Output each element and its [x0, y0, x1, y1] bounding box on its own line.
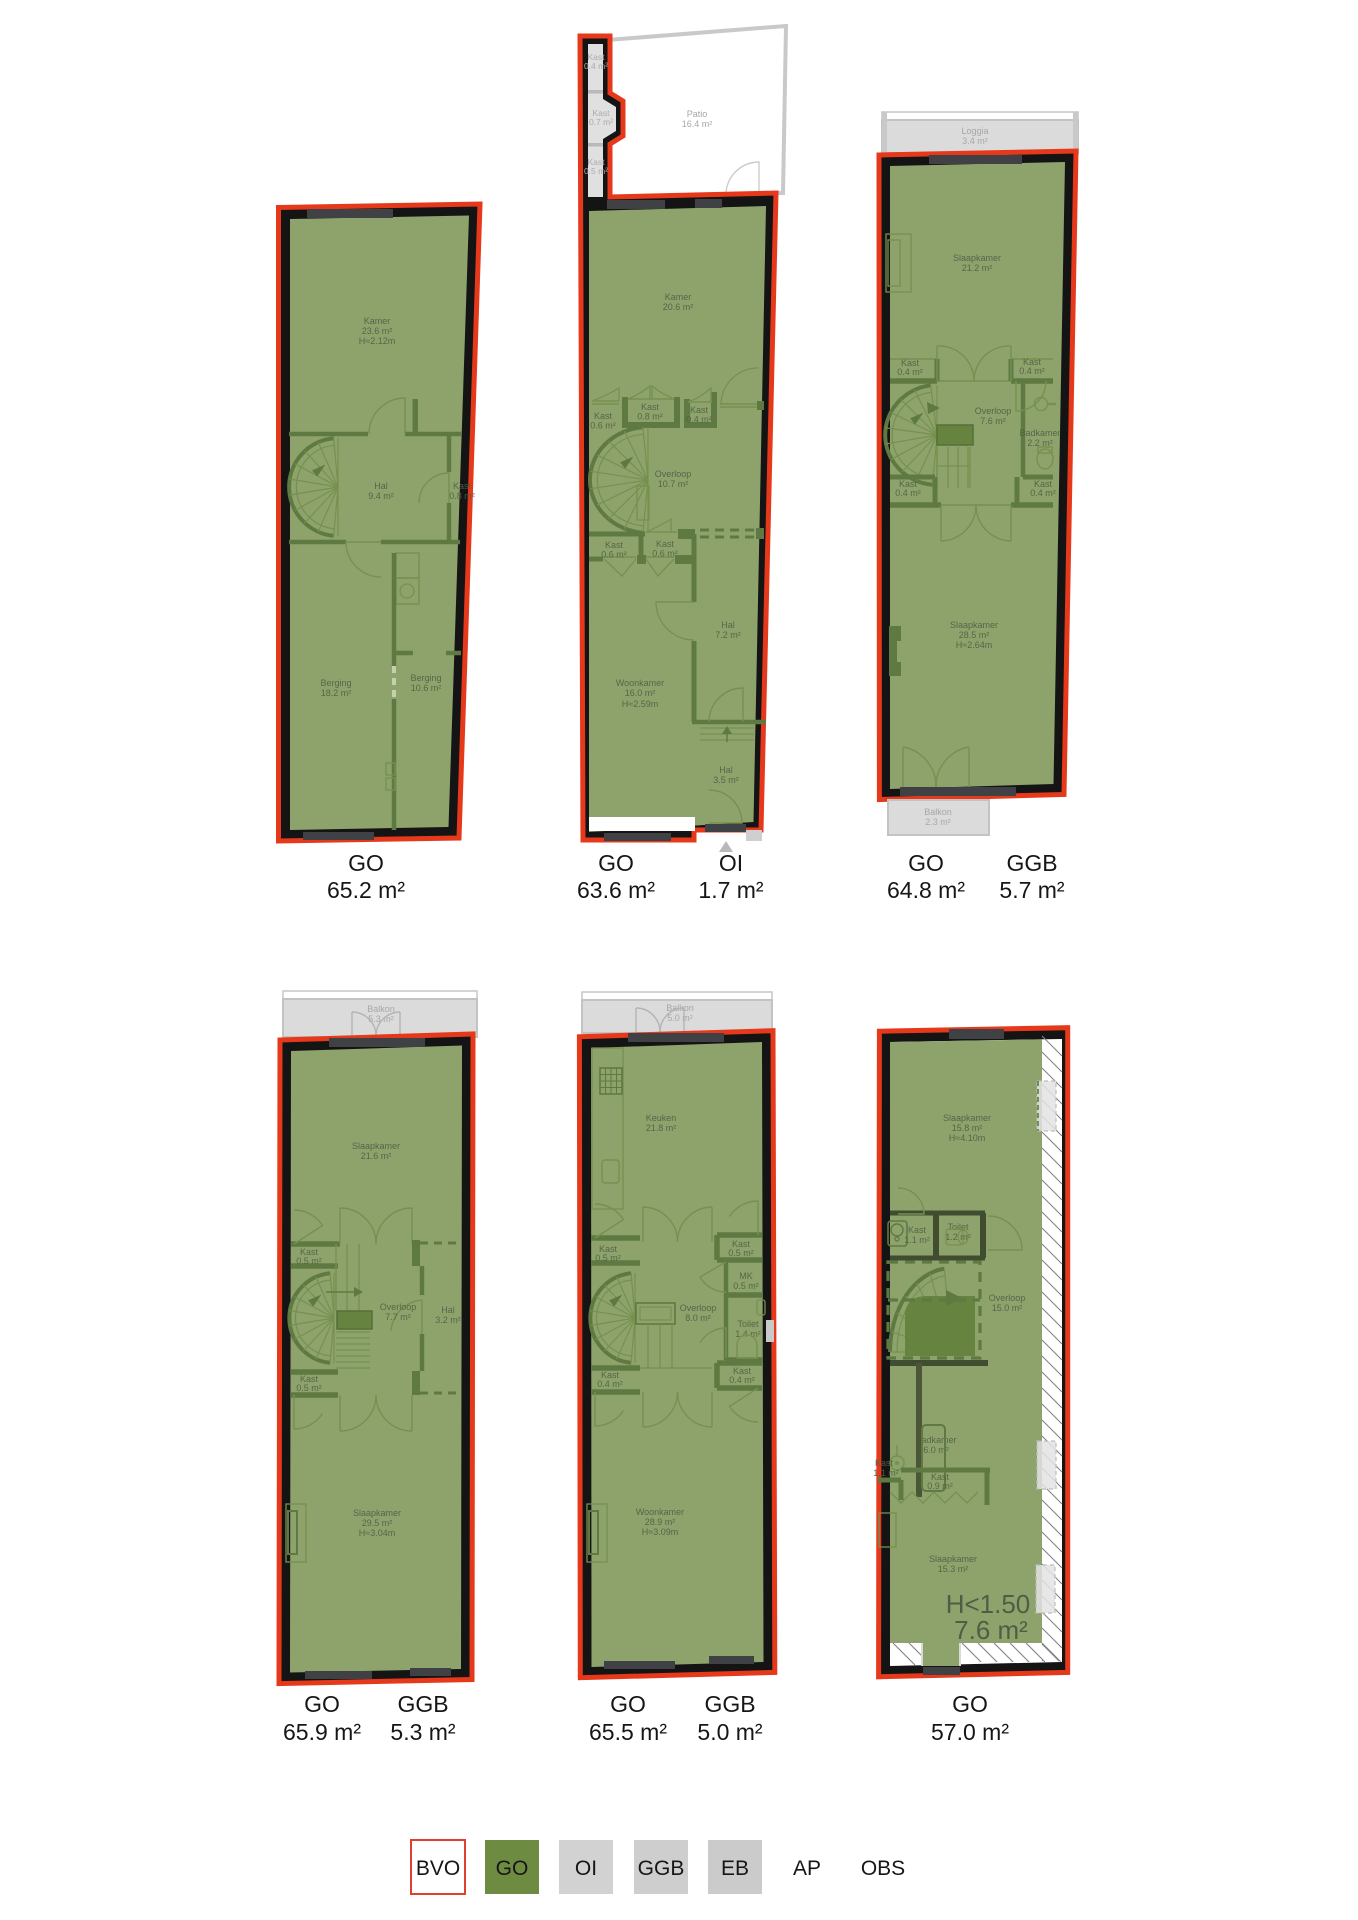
svg-text:0.4 m²: 0.4 m²: [1019, 366, 1045, 376]
svg-text:OBS: OBS: [861, 1857, 905, 1880]
svg-text:Kast: Kast: [641, 402, 660, 412]
svg-text:7.6 m²: 7.6 m²: [980, 416, 1006, 426]
svg-text:65.5 m²: 65.5 m²: [589, 1719, 667, 1745]
svg-text:21.6 m²: 21.6 m²: [361, 1151, 392, 1161]
svg-text:Berging: Berging: [320, 678, 351, 688]
svg-text:28.9 m²: 28.9 m²: [645, 1517, 676, 1527]
svg-text:H≈3.04m: H≈3.04m: [359, 1528, 395, 1538]
svg-text:1.1 m²: 1.1 m²: [873, 1468, 899, 1478]
svg-text:Badkamer: Badkamer: [1019, 428, 1060, 438]
svg-text:H≈3.09m: H≈3.09m: [642, 1527, 678, 1537]
svg-text:MK: MK: [739, 1271, 753, 1281]
svg-text:Kast: Kast: [605, 540, 624, 550]
svg-text:5.0 m²: 5.0 m²: [667, 1013, 693, 1023]
svg-text:3.5 m²: 3.5 m²: [713, 775, 739, 785]
svg-text:0.4 m²: 0.4 m²: [1030, 488, 1056, 498]
svg-text:Kast: Kast: [453, 481, 472, 491]
svg-text:16.0 m²: 16.0 m²: [625, 688, 656, 698]
svg-text:65.9 m²: 65.9 m²: [283, 1719, 361, 1745]
svg-text:8.0 m²: 8.0 m²: [685, 1313, 711, 1323]
svg-text:Slaapkamer: Slaapkamer: [953, 253, 1001, 263]
svg-text:Kast: Kast: [875, 1458, 894, 1468]
svg-text:0.5 m²: 0.5 m²: [733, 1281, 759, 1291]
svg-text:GO: GO: [908, 850, 944, 876]
svg-text:18.2 m²: 18.2 m²: [321, 688, 352, 698]
svg-text:Slaapkamer: Slaapkamer: [950, 620, 998, 630]
svg-text:29.5 m²: 29.5 m²: [362, 1518, 393, 1528]
svg-text:GO: GO: [304, 1691, 340, 1717]
svg-text:OI: OI: [719, 850, 743, 876]
svg-text:OI: OI: [575, 1857, 597, 1880]
svg-text:Woonkamer: Woonkamer: [636, 1507, 684, 1517]
svg-text:Hal: Hal: [374, 481, 388, 491]
svg-text:GO: GO: [496, 1857, 529, 1880]
svg-text:AP: AP: [793, 1857, 821, 1880]
svg-text:0.7 m²: 0.7 m²: [589, 117, 613, 127]
svg-text:15.8 m²: 15.8 m²: [952, 1123, 983, 1133]
svg-text:0.5 m²: 0.5 m²: [296, 1383, 322, 1393]
svg-text:GGB: GGB: [704, 1691, 755, 1717]
svg-text:0.6 m²: 0.6 m²: [590, 421, 616, 431]
svg-text:0.8 m²: 0.8 m²: [449, 491, 475, 501]
svg-text:Berging: Berging: [410, 673, 441, 683]
svg-text:GGB: GGB: [1006, 850, 1057, 876]
svg-text:GO: GO: [610, 1691, 646, 1717]
svg-text:H≈2.64m: H≈2.64m: [956, 640, 992, 650]
svg-text:28.5 m²: 28.5 m²: [959, 630, 990, 640]
svg-text:0.5 m²: 0.5 m²: [584, 166, 608, 176]
svg-text:Balkon: Balkon: [924, 807, 952, 817]
svg-text:Overloop: Overloop: [975, 406, 1012, 416]
svg-text:Balkon: Balkon: [367, 1004, 395, 1014]
svg-text:0.4 m²: 0.4 m²: [729, 1375, 755, 1385]
svg-text:Kamer: Kamer: [665, 292, 692, 302]
svg-text:Woonkamer: Woonkamer: [616, 678, 664, 688]
svg-text:Kast: Kast: [690, 405, 709, 415]
svg-text:10.6 m²: 10.6 m²: [411, 683, 442, 693]
svg-text:GGB: GGB: [397, 1691, 448, 1717]
svg-text:21.2 m²: 21.2 m²: [962, 263, 993, 273]
svg-text:0.4 m²: 0.4 m²: [584, 61, 608, 71]
svg-text:0.6 m²: 0.6 m²: [652, 549, 678, 559]
svg-text:H≈4.10m: H≈4.10m: [949, 1133, 985, 1143]
svg-text:0.5 m²: 0.5 m²: [296, 1256, 322, 1266]
svg-text:0.6 m²: 0.6 m²: [601, 550, 627, 560]
svg-text:5.7 m²: 5.7 m²: [999, 877, 1065, 903]
svg-text:16.4 m²: 16.4 m²: [682, 119, 713, 129]
svg-text:Hal: Hal: [719, 765, 733, 775]
svg-text:1.1 m²: 1.1 m²: [904, 1235, 930, 1245]
svg-text:GO: GO: [952, 1691, 988, 1717]
svg-text:15.3 m²: 15.3 m²: [938, 1564, 969, 1574]
svg-text:23.6 m²: 23.6 m²: [362, 326, 393, 336]
svg-text:0.9 m²: 0.9 m²: [927, 1481, 953, 1491]
svg-text:Overloop: Overloop: [380, 1302, 417, 1312]
svg-text:0.4 m²: 0.4 m²: [897, 367, 923, 377]
svg-text:Hal: Hal: [441, 1305, 455, 1315]
svg-text:9.4 m²: 9.4 m²: [368, 491, 394, 501]
svg-text:Kast: Kast: [908, 1225, 927, 1235]
svg-text:Slaapkamer: Slaapkamer: [353, 1508, 401, 1518]
svg-text:Kast: Kast: [656, 539, 675, 549]
svg-text:3.2 m²: 3.2 m²: [435, 1315, 461, 1325]
svg-text:65.2 m²: 65.2 m²: [327, 877, 405, 903]
svg-text:0.4 m²: 0.4 m²: [597, 1379, 623, 1389]
svg-text:7.6 m²: 7.6 m²: [954, 1615, 1028, 1645]
svg-text:2.3 m²: 2.3 m²: [925, 817, 951, 827]
svg-text:Kamer: Kamer: [364, 316, 391, 326]
svg-text:Keuken: Keuken: [646, 1113, 677, 1123]
svg-text:Slaapkamer: Slaapkamer: [943, 1113, 991, 1123]
svg-text:EB: EB: [721, 1857, 749, 1880]
svg-text:H≈2.59m: H≈2.59m: [622, 699, 658, 709]
svg-text:H≈2.12m: H≈2.12m: [359, 336, 395, 346]
svg-text:5.0 m²: 5.0 m²: [697, 1719, 763, 1745]
svg-text:GO: GO: [598, 850, 634, 876]
svg-text:64.8 m²: 64.8 m²: [887, 877, 965, 903]
svg-text:0.8 m²: 0.8 m²: [637, 412, 663, 422]
svg-text:Hal: Hal: [721, 620, 735, 630]
svg-text:Toilet: Toilet: [737, 1319, 759, 1329]
svg-text:15.0 m²: 15.0 m²: [992, 1303, 1023, 1313]
svg-text:20.6 m²: 20.6 m²: [663, 302, 694, 312]
svg-text:Overloop: Overloop: [680, 1303, 717, 1313]
svg-text:0.5 m²: 0.5 m²: [595, 1253, 621, 1263]
svg-text:GGB: GGB: [638, 1857, 685, 1880]
svg-text:21.8 m²: 21.8 m²: [646, 1123, 677, 1133]
svg-text:0.4 m²: 0.4 m²: [895, 488, 921, 498]
svg-text:10.7 m²: 10.7 m²: [658, 479, 689, 489]
svg-text:0.5 m²: 0.5 m²: [728, 1248, 754, 1258]
svg-text:Slaapkamer: Slaapkamer: [352, 1141, 400, 1151]
svg-text:5.3 m²: 5.3 m²: [390, 1719, 456, 1745]
svg-text:Overloop: Overloop: [989, 1293, 1026, 1303]
svg-text:Kast: Kast: [594, 411, 613, 421]
svg-text:Overloop: Overloop: [655, 469, 692, 479]
svg-text:7.2 m²: 7.2 m²: [715, 630, 741, 640]
svg-text:7.7 m²: 7.7 m²: [385, 1312, 411, 1322]
svg-text:Patio: Patio: [687, 109, 708, 119]
svg-text:GO: GO: [348, 850, 384, 876]
svg-text:1.7 m²: 1.7 m²: [698, 877, 764, 903]
svg-text:57.0 m²: 57.0 m²: [931, 1719, 1009, 1745]
svg-text:63.6 m²: 63.6 m²: [577, 877, 655, 903]
svg-text:Loggia: Loggia: [961, 126, 988, 136]
svg-text:Slaapkamer: Slaapkamer: [929, 1554, 977, 1564]
svg-text:1.4 m²: 1.4 m²: [735, 1329, 761, 1339]
svg-text:0.4 m²: 0.4 m²: [686, 415, 712, 425]
svg-text:3.4 m²: 3.4 m²: [962, 136, 988, 146]
svg-text:BVO: BVO: [416, 1857, 460, 1880]
